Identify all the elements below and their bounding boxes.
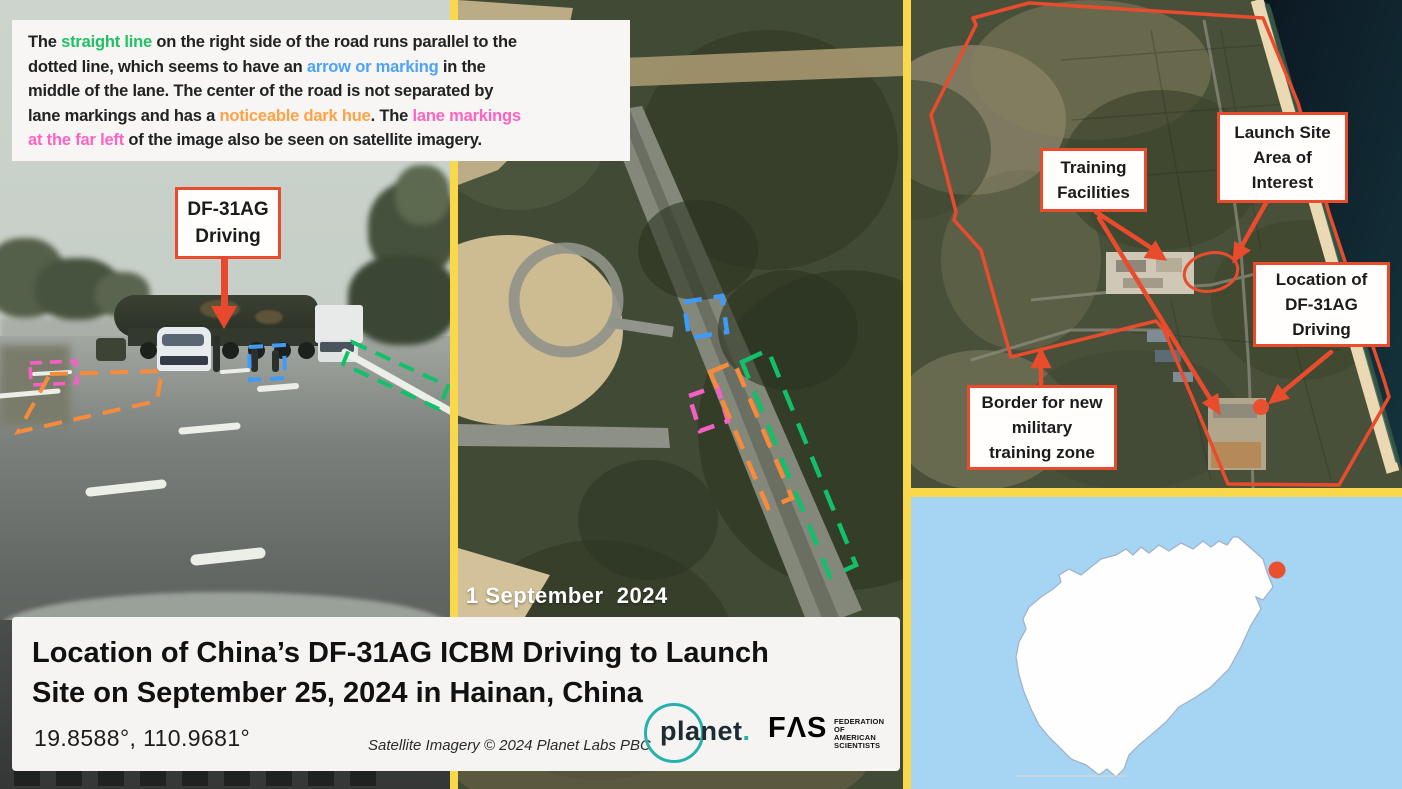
satellite-image-date: 1 September 2024: [466, 583, 668, 609]
divider-right-map: [911, 488, 1402, 497]
border-zone-label: Border for new military training zone: [967, 385, 1117, 470]
label-line: training zone: [970, 440, 1114, 465]
label-line: Area of: [1220, 145, 1345, 170]
planet-logo-text: planet.: [660, 716, 751, 747]
label-line: DF-31AG: [1256, 292, 1387, 317]
label-line: Interest: [1220, 170, 1345, 195]
orange-dashed-box-photo: [18, 371, 162, 432]
fas-logo-text: FΛS: [768, 712, 827, 745]
coordinates-text: 19.8588°, 110.9681°: [34, 725, 250, 752]
analysis-note-box: The straight line on the right side of t…: [12, 20, 630, 161]
title-line1: Location of China’s DF-31AG ICBM Driving…: [32, 633, 872, 673]
df31ag-arrowhead: [211, 306, 237, 329]
launch-site-label: Launch Site Area of Interest: [1217, 112, 1348, 203]
df31ag-arrow: [221, 256, 228, 308]
df31ag-location-label: Location of DF-31AG Driving: [1253, 262, 1390, 347]
training-facilities-label: Training Facilities: [1040, 148, 1147, 212]
df31ag-label-line2: Driving: [178, 223, 278, 250]
fas-logo-subtext: FEDERATION OF AMERICAN SCIENTISTS: [834, 718, 884, 750]
label-line: Training: [1043, 155, 1144, 180]
label-line: Driving: [1256, 317, 1387, 342]
blue-dashed-box-photo: [249, 345, 285, 380]
fas-sub-line: SCIENTISTS: [834, 742, 884, 750]
title-footer-box: Location of China’s DF-31AG ICBM Driving…: [12, 617, 900, 771]
infographic-canvas: DF-31AG Driving: [0, 0, 1402, 789]
imagery-attribution: Satellite Imagery © 2024 Planet Labs PBC: [368, 737, 651, 754]
planet-period: .: [743, 716, 751, 746]
planet-word: planet: [660, 716, 743, 746]
label-line: Border for new: [970, 390, 1114, 415]
label-line: Facilities: [1043, 180, 1144, 205]
hainan-map-image: [911, 497, 1402, 789]
note-text: The straight line on the right side of t…: [28, 30, 614, 153]
label-line: Launch Site: [1220, 120, 1345, 145]
label-line: military: [970, 415, 1114, 440]
planet-logo: planet.: [642, 701, 772, 763]
map-location-dot: [1269, 562, 1286, 579]
satellite-overview-panel: Training Facilities Launch Site Area of …: [911, 0, 1402, 488]
divider-mid-right: [903, 0, 911, 789]
df31ag-driving-label: DF-31AG Driving: [175, 187, 281, 259]
hainan-locator-map: [911, 497, 1402, 789]
df31ag-label-line1: DF-31AG: [178, 196, 278, 223]
df31ag-location-dot: [1253, 399, 1269, 415]
fas-sub-line: OF AMERICAN: [834, 726, 884, 742]
label-line: Location of: [1256, 267, 1387, 292]
